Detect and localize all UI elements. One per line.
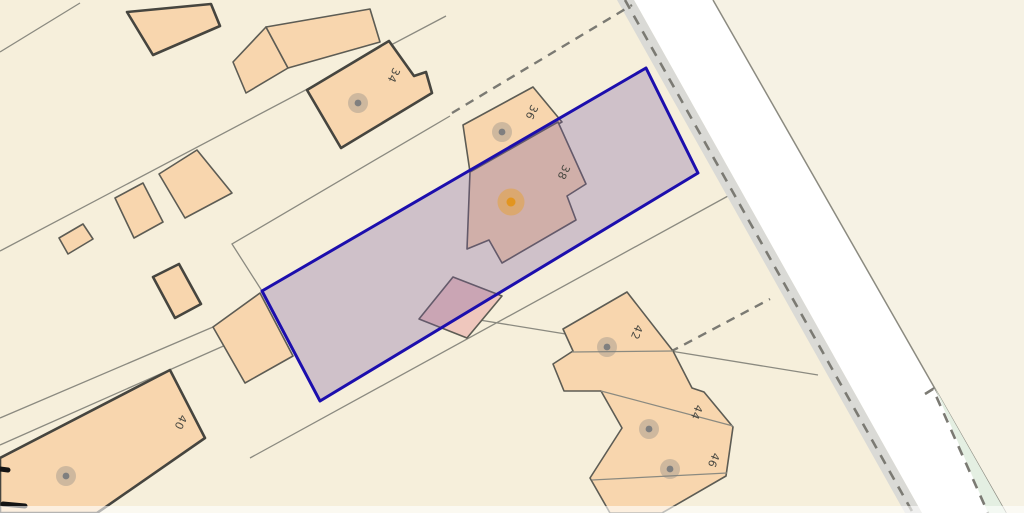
address-marker-40[interactable] (63, 473, 70, 480)
address-marker-38[interactable] (507, 198, 516, 207)
address-marker-42[interactable] (604, 344, 611, 351)
black-boundary-mark (3, 504, 25, 506)
address-marker-36[interactable] (499, 129, 506, 136)
map-viewport[interactable]: 34363840424446 (0, 0, 1024, 513)
address-marker-44[interactable] (646, 426, 653, 433)
map-bottom-fade (0, 506, 1024, 513)
map-canvas[interactable]: 34363840424446 (0, 0, 1024, 513)
address-marker-46[interactable] (667, 466, 674, 473)
address-marker-34[interactable] (355, 100, 362, 107)
black-boundary-mark (0, 469, 8, 470)
